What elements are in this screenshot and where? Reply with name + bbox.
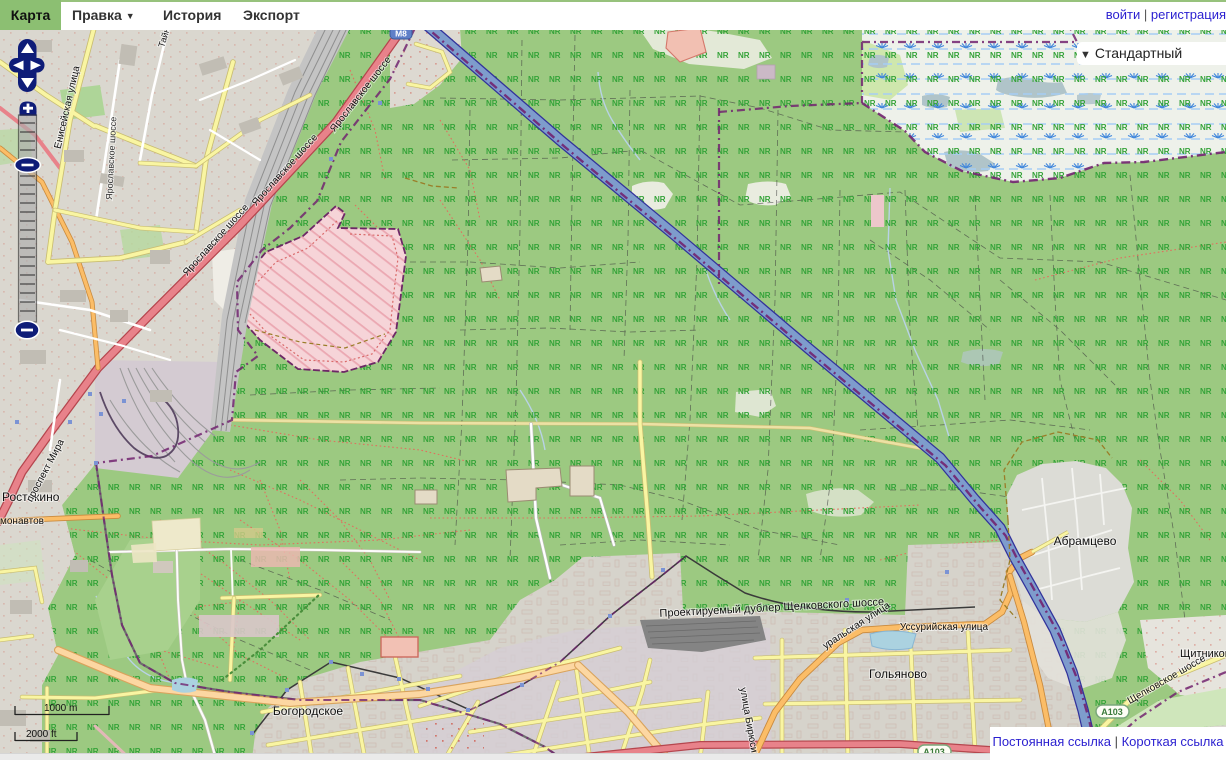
svg-text:1000 m: 1000 m bbox=[44, 703, 77, 714]
svg-text:Богородское: Богородское bbox=[273, 704, 343, 718]
svg-text:Гольяново: Гольяново bbox=[869, 667, 927, 681]
svg-text:Уссурийская улица: Уссурийская улица bbox=[900, 622, 989, 633]
svg-text:А103: А103 bbox=[1101, 707, 1123, 717]
svg-text:2000 ft: 2000 ft bbox=[26, 729, 57, 740]
svg-text:М8: М8 bbox=[395, 29, 407, 39]
svg-text:Абрамцево: Абрамцево bbox=[1054, 534, 1117, 548]
svg-text:монавтов: монавтов bbox=[0, 516, 44, 527]
